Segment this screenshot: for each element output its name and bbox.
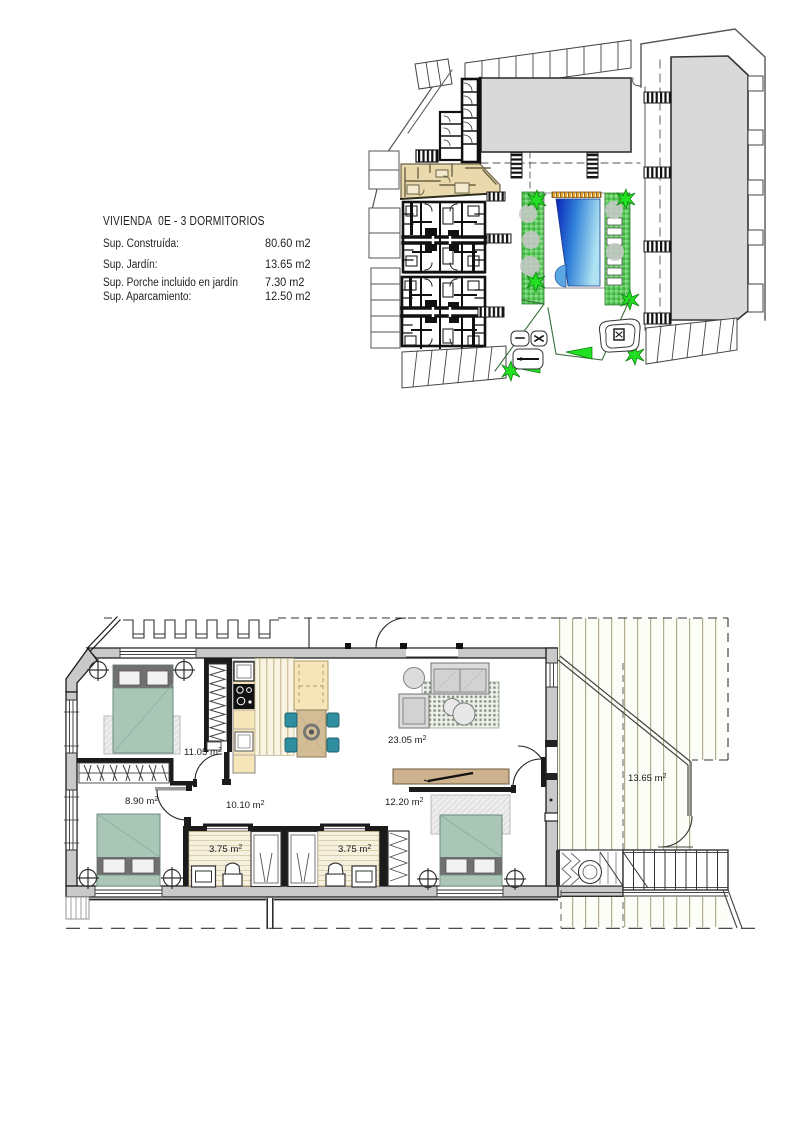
svg-text:23.05 m2: 23.05 m2: [388, 735, 427, 746]
svg-text:13.65 m2: 13.65 m2: [628, 773, 667, 784]
svg-text:3.75 m2: 3.75 m2: [338, 844, 371, 855]
svg-text:8.90 m2: 8.90 m2: [125, 796, 158, 807]
svg-text:12.20 m2: 12.20 m2: [385, 797, 424, 808]
svg-text:10.10 m2: 10.10 m2: [226, 800, 265, 811]
svg-text:11.05 m2: 11.05 m2: [184, 747, 222, 758]
svg-text:3.75 m2: 3.75 m2: [209, 844, 242, 855]
